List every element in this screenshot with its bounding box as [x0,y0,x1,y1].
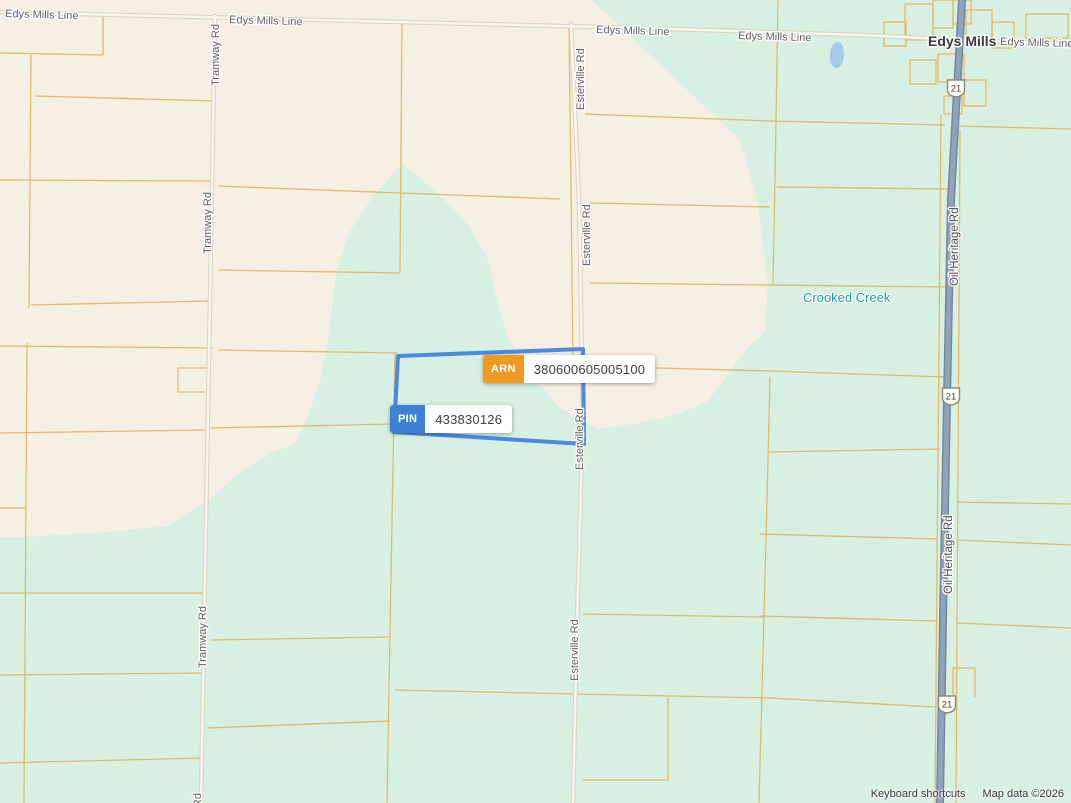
arn-value: 380600605005100 [524,355,655,383]
road-label-tramway-rd: Tramway Rd [202,192,214,254]
map-svg: Edys Mills Line Edys Mills Line Edys Mil… [0,0,1071,803]
town-label-edys-mills: Edys Mills [928,33,997,49]
road-label-tramway-rd: Tramway Rd [210,24,222,86]
road-label-edys-mills-line: Edys Mills Line [1000,36,1071,50]
road-label-edys-mills-line: Edys Mills Line [738,30,812,44]
pin-badge: PIN [390,405,425,433]
road-label-esterville-rd: Esterville Rd [575,48,587,110]
water-label-crooked-creek: Crooked Creek [803,290,891,305]
route-21-shield: 21 [943,388,960,405]
svg-text:21: 21 [942,700,953,711]
regions-layer [0,0,1071,803]
road-label-tramway-rd: Tramway Rd [197,606,209,668]
road-label-tramway-rd: Tramway Rd [192,793,204,803]
svg-text:21: 21 [951,84,962,95]
road-label-esterville-rd: Esterville Rd [581,204,593,266]
map-canvas[interactable]: Edys Mills Line Edys Mills Line Edys Mil… [0,0,1071,803]
route-21-shield: 21 [948,80,965,97]
pin-value: 433830126 [425,405,512,433]
road-label-esterville-rd: Esterville Rd [574,408,586,470]
road-label-edys-mills-line: Edys Mills Line [5,8,79,22]
pin-callout[interactable]: PIN 433830126 [390,405,512,433]
arn-callout[interactable]: ARN 380600605005100 [483,355,655,383]
road-label-oil-heritage-rd: Oil Heritage Rd [949,207,961,286]
road-label-oil-heritage-rd: Oil Heritage Rd [943,515,955,594]
road-label-esterville-rd: Esterville Rd [569,619,581,681]
road-label-edys-mills-line: Edys Mills Line [229,14,303,28]
map-footer: Keyboard shortcuts Map data ©2026 [871,788,1064,800]
arn-badge: ARN [483,355,524,383]
road-label-edys-mills-line: Edys Mills Line [596,24,670,38]
svg-text:21: 21 [946,392,957,403]
map-data-copyright: Map data ©2026 [983,788,1065,800]
route-21-shield: 21 [939,696,956,713]
keyboard-shortcuts-link[interactable]: Keyboard shortcuts [871,788,966,800]
